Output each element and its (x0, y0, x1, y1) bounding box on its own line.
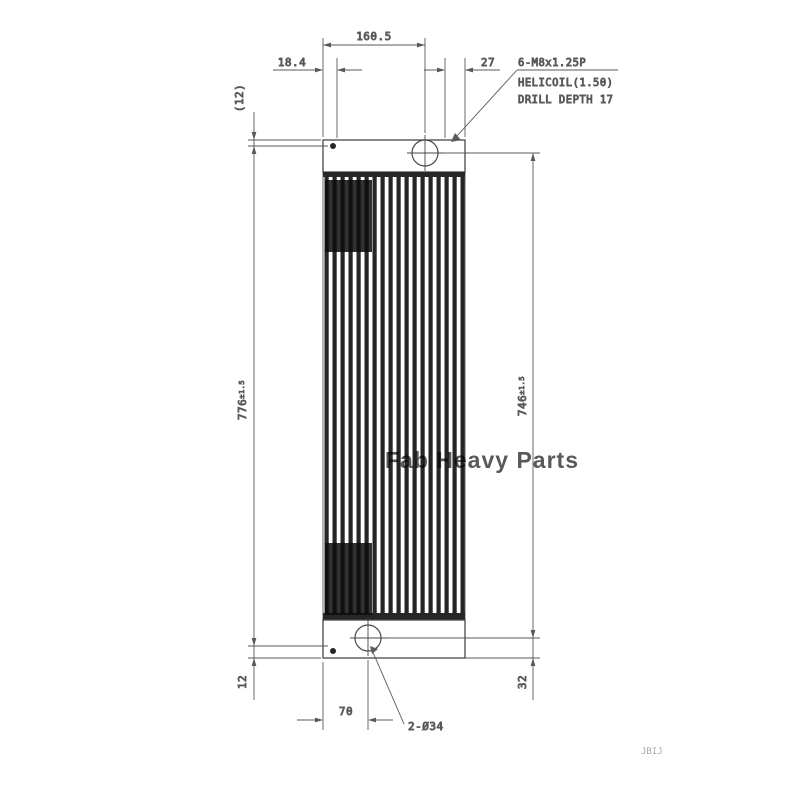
dim-top-right-offset: 27 (424, 56, 500, 138)
dim-top-left-value: 18.4 (278, 56, 307, 69)
dim-left-overall: 776±1.5 (236, 380, 249, 420)
drawing-canvas: 160.5 18.4 27 (0, 0, 800, 800)
dim-top-right-value: 27 (481, 56, 495, 69)
bottom-ref-dot (330, 648, 336, 654)
part-view (323, 135, 465, 658)
faint-stamp: JBIJ (641, 747, 663, 757)
dim-right-bottom-value: 32 (516, 675, 529, 689)
thread-note-line3: DRILL DEPTH 17 (518, 94, 614, 106)
core-top-band (323, 172, 465, 177)
dim-left-bottom-value: 12 (236, 675, 249, 689)
dim-right-core: 746±1.5 (516, 376, 529, 416)
bottom-tank (323, 620, 465, 658)
dim-top-width-value: 160.5 (356, 30, 392, 43)
dim-left-chain: (12) 776±1.5 12 (233, 84, 328, 700)
dim-top-left-offset: 18.4 (273, 56, 362, 138)
watermark-text: Fab Heavy Parts (385, 447, 579, 473)
technical-drawing: 160.5 18.4 27 (0, 0, 800, 800)
dim-bottom-offset: 70 (297, 660, 393, 730)
core-dark-block-top (325, 180, 372, 252)
holes-callout-value: 2-Ø34 (408, 720, 444, 733)
dim-bottom-offset-value: 70 (339, 705, 353, 718)
core-dark-block-bottom (325, 543, 372, 615)
dim-top-width: 160.5 (323, 30, 425, 137)
dim-left-ref-value: (12) (233, 84, 246, 113)
top-tank (323, 140, 465, 172)
thread-note-line1: 6-M8x1.25P (518, 57, 586, 69)
top-ref-dot (330, 143, 336, 149)
thread-note-line2: HELICOIL(1.50) (518, 77, 614, 89)
